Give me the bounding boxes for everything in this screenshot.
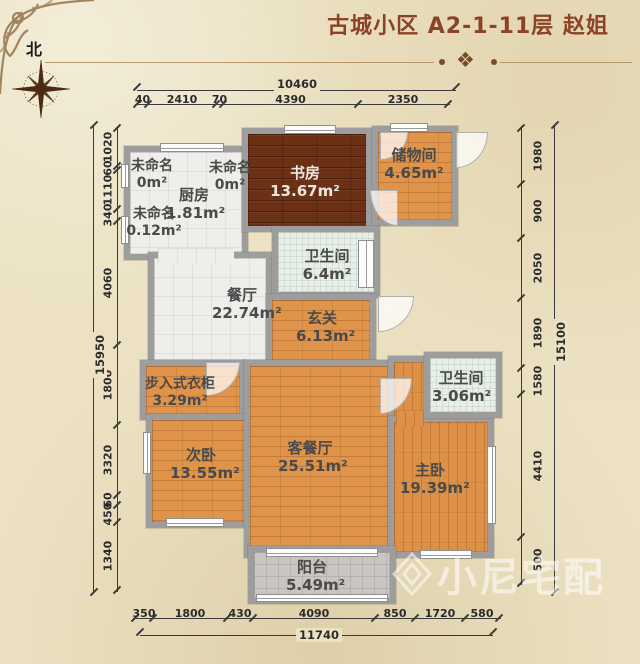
dim-segment: 1800: [153, 612, 227, 624]
dim-label: 900: [532, 200, 545, 223]
dim-label: 2050: [532, 253, 545, 284]
dim-segment: 4390: [223, 98, 358, 110]
room-area: 6.4m²: [298, 265, 356, 283]
room-name: 未命名: [209, 160, 251, 176]
page-title: 古城小区 A2-1-11层 赵姐: [300, 8, 636, 40]
room-name: 阳台: [297, 558, 327, 576]
kitchen-dining-opening: [158, 248, 234, 264]
room-name: 玄关: [307, 309, 337, 327]
header-divider-line: [45, 62, 434, 63]
dim-segment: 2050: [515, 238, 529, 298]
room-name: 卫生间: [438, 369, 483, 387]
dim-total-right: 15100: [554, 319, 568, 365]
dim-label: 580: [471, 607, 494, 620]
room-area: 6.13m²: [296, 327, 348, 345]
room-name: 餐厅: [227, 286, 257, 304]
dim-label: 1720: [425, 607, 456, 620]
north-label: 北: [26, 36, 42, 60]
door-arc: [456, 132, 488, 168]
room-label-balcony: 阳台 5.49m²: [286, 558, 338, 594]
room-area: 3.06m²: [432, 387, 490, 405]
dim-label: 4090: [299, 607, 330, 620]
dim-total-left: 15950: [93, 332, 107, 378]
window: [143, 432, 151, 474]
room-name: 主卧: [415, 461, 445, 479]
dim-label: 850: [384, 607, 407, 620]
room-name: 未命名: [133, 206, 175, 222]
room-label-dining: 餐厅 22.74m²: [212, 286, 272, 322]
dim-segment: 2410: [148, 98, 216, 110]
dim-total-bottom: 11740: [296, 628, 342, 642]
divider-dot: [491, 59, 497, 65]
dim-segment: 4090: [253, 612, 375, 624]
dim-label: 4410: [532, 450, 545, 481]
room-area: 4.65m²: [384, 164, 444, 182]
dim-total-top: 10460: [274, 77, 320, 91]
sliding-door: [266, 548, 378, 557]
dim-label: 4390: [275, 93, 306, 106]
dim-label: 2350: [388, 93, 419, 106]
room-label-study: 书房 13.67m²: [268, 164, 342, 200]
dim-label: 1580: [532, 366, 545, 397]
room-name: 储物间: [391, 146, 436, 164]
dimension-chain-left: 1020 60 1110 340 4060 1800 3320 60 450 1…: [111, 128, 125, 590]
dim-segment: 2350: [358, 98, 448, 110]
header-divider-line: [500, 62, 632, 63]
room-label-master: 主卧 19.39m²: [400, 461, 460, 497]
dimension-chain-top: 40 2410 70 4390 2350: [137, 98, 448, 110]
dim-label: 4060: [102, 268, 115, 299]
compass-icon: [12, 58, 70, 120]
room-area: 25.51m²: [278, 457, 342, 475]
room-label-bedroom2: 次卧 13.55m²: [170, 446, 232, 482]
dim-segment: 1980: [515, 128, 529, 184]
watermark-text: 小尼宅配: [437, 545, 605, 603]
dim-label: 2410: [167, 93, 198, 106]
room-area: 13.55m²: [170, 464, 232, 482]
room-label-storage: 储物间 4.65m²: [384, 146, 444, 182]
room-label-closet: 步入式衣柜 3.29m²: [134, 376, 226, 410]
dim-segment: 1800: [111, 345, 125, 425]
room-name: 未命名: [131, 158, 173, 174]
dimension-chain-right: 1980 900 2050 1890 1580 4410 500: [515, 128, 529, 583]
dim-segment: 1340: [111, 522, 125, 590]
dim-label: 430: [229, 607, 252, 620]
bath-fixture: [358, 240, 374, 288]
window: [160, 143, 224, 152]
window: [284, 125, 336, 134]
room-name: 步入式衣柜: [145, 376, 215, 392]
dim-label: 1340: [102, 541, 115, 572]
room-label-unnamed-c: 未命名 0.12m²: [126, 206, 182, 240]
dim-segment: 430: [227, 612, 253, 624]
dim-label: 1800: [175, 607, 206, 620]
room-area: 5.49m²: [286, 576, 338, 594]
entrance-door-arc: [378, 296, 414, 332]
room-label-bathroom-1: 卫生间 6.4m²: [298, 247, 356, 283]
dim-label: 1110: [102, 174, 115, 205]
room-name: 厨房: [179, 186, 209, 204]
divider-ornament-icon: ❖: [456, 50, 475, 71]
window: [256, 594, 388, 602]
dim-segment: 1720: [415, 612, 465, 624]
room-name: 客餐厅: [287, 439, 332, 457]
window: [390, 123, 428, 132]
room-label-bathroom-2: 卫生间 3.06m²: [432, 369, 490, 405]
room-name: 次卧: [186, 446, 216, 464]
room-area: 19.39m²: [400, 479, 460, 497]
room-area: 3.29m²: [134, 393, 226, 410]
dim-segment: 3320: [111, 425, 125, 495]
dimension-chain-bottom: 350 1800 430 4090 850 1720 580: [135, 612, 499, 624]
dim-label: 1890: [532, 318, 545, 349]
room-label-living: 客餐厅 25.51m²: [278, 439, 342, 475]
room-area: 0.12m²: [126, 223, 182, 240]
room-label-hall: 玄关 6.13m²: [296, 309, 348, 345]
master-opening: [396, 410, 424, 426]
dim-segment: 850: [375, 612, 415, 624]
dim-label: 1980: [532, 141, 545, 172]
watermark-logo-icon: [392, 552, 432, 596]
room-name: 卫生间: [304, 247, 349, 265]
window: [166, 518, 224, 527]
dim-label: 3320: [102, 445, 115, 476]
room-name: 书房: [290, 164, 320, 182]
divider-dot: [439, 59, 445, 65]
watermark: 小尼宅配: [392, 545, 605, 603]
room-area: 13.67m²: [268, 182, 342, 200]
dim-segment: 4410: [515, 394, 529, 537]
room-area: 22.74m²: [212, 304, 272, 322]
dim-label: 1020: [102, 132, 115, 163]
dim-segment: 580: [465, 612, 499, 624]
dim-segment: 900: [515, 184, 529, 238]
window: [487, 446, 496, 524]
dim-segment: 1890: [515, 298, 529, 368]
